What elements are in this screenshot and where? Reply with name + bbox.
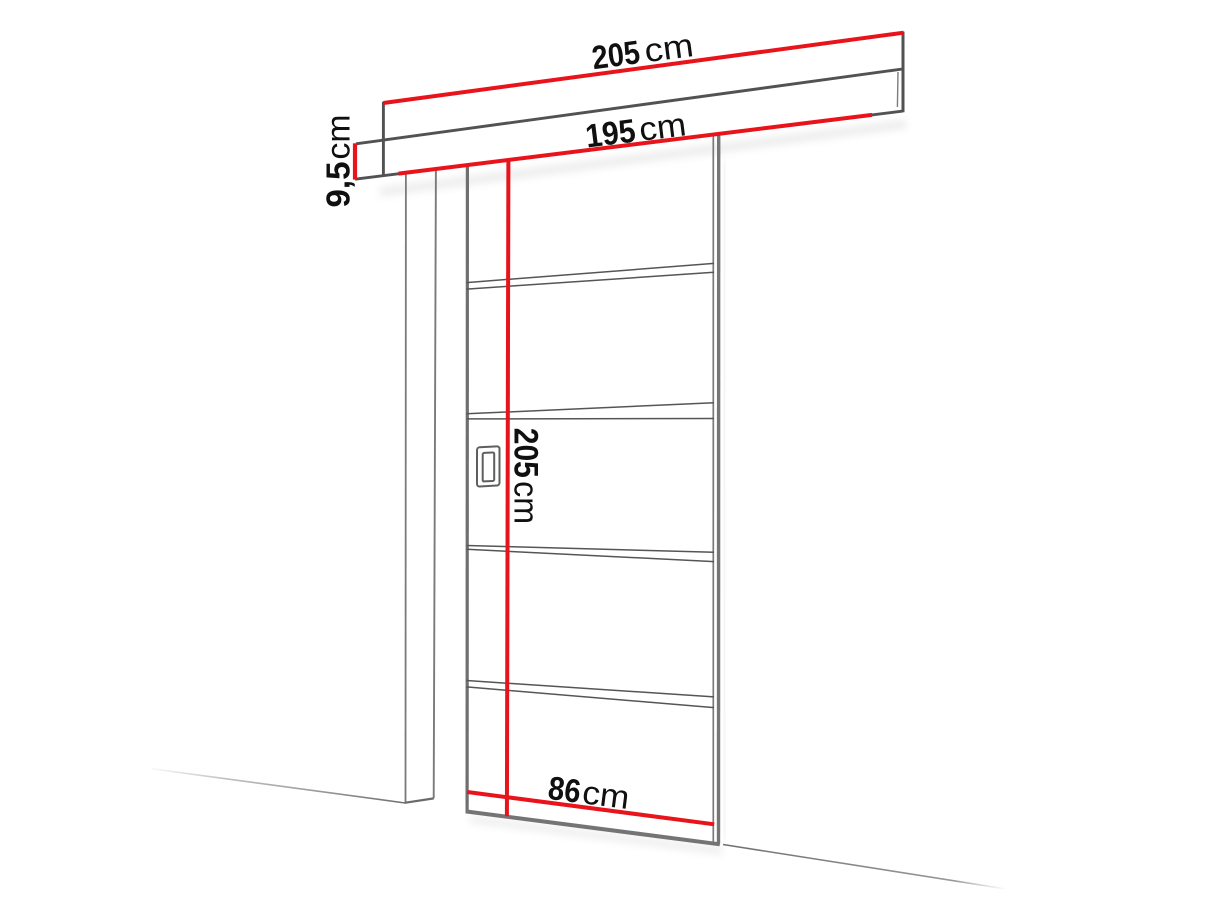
- svg-text:205cm: 205cm: [507, 428, 545, 524]
- svg-text:195cm: 195cm: [583, 105, 688, 154]
- svg-text:9,5cm: 9,5cm: [320, 115, 357, 208]
- svg-text:86cm: 86cm: [546, 769, 631, 816]
